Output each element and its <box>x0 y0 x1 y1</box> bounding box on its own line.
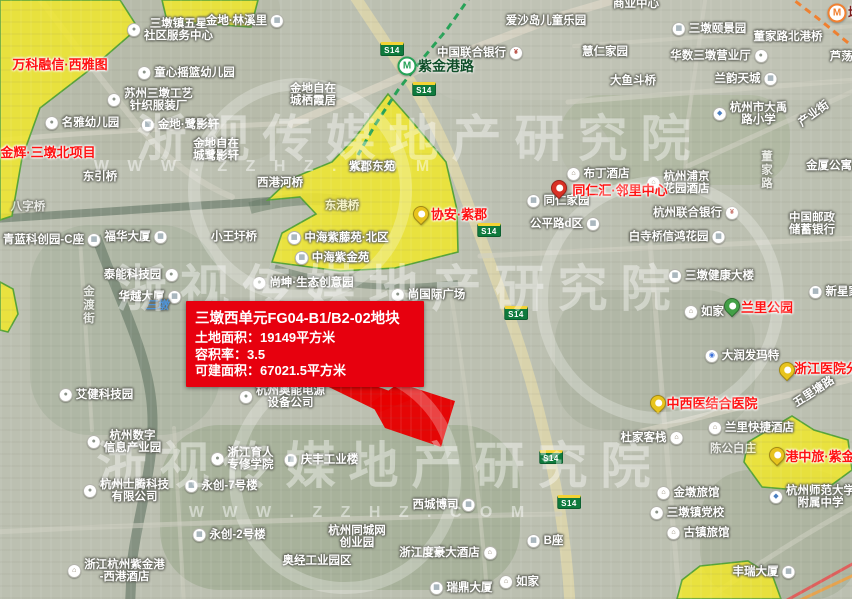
dot-icon: ● <box>45 116 59 130</box>
map-label-text: 中国邮政储蓄银行 <box>789 212 835 236</box>
map-label-text: 小王圩桥 <box>211 231 257 243</box>
map-label: 白寺桥 <box>629 231 664 243</box>
map-label-text: 青蓝科创园-C座 <box>3 234 84 246</box>
map-label-text: 东引桥 <box>83 171 118 183</box>
map-label: 金地·林溪里▦ <box>206 14 284 28</box>
map-label: ●杭州士腾科技有限公司 <box>83 479 169 503</box>
map-label: ▦三墩颐景园 <box>672 22 747 36</box>
map-label: 三墩 <box>146 300 169 312</box>
map-label: 杭州联合银行¥ <box>653 206 739 220</box>
map-label: ⌂兰里快捷酒店 <box>708 421 794 435</box>
poi-pin[interactable] <box>410 203 433 226</box>
map-label: 紫郡东苑 <box>349 161 395 173</box>
map-label: 福华大厦▦ <box>105 230 168 244</box>
map-label: 万科融信·西雅图 <box>12 59 107 71</box>
map-label: ●三墩镇党校 <box>650 506 725 520</box>
bld-icon: ▦ <box>672 22 686 36</box>
hotel-icon: ⌂ <box>667 526 681 540</box>
map-label: 中西医结合医院 <box>666 398 757 410</box>
bld-icon: ▦ <box>270 14 284 28</box>
map-label-text: 金厦公寓 <box>806 160 852 172</box>
map-label-text: 杭州联合银行 <box>653 207 722 219</box>
map-label: ●苏州三墩工艺针织服装厂 <box>107 88 193 112</box>
map-label: 陈公白庄 <box>710 443 756 455</box>
hotel-icon: ⌂ <box>67 564 81 578</box>
map-label: ▦永创-2号楼 <box>192 528 265 542</box>
map-label: 董家路北港桥 <box>754 31 823 43</box>
bld-icon: ▦ <box>782 565 796 579</box>
map-label-text: 杭州奥能电源设备公司 <box>256 385 325 409</box>
map-label-text: 尚国际广场 <box>408 289 466 301</box>
map-label-text: 三墩颐景园 <box>689 23 747 35</box>
map-label: 泰能科技园● <box>104 268 179 282</box>
bld-icon: ▦ <box>295 251 309 265</box>
parcel-land-area: 土地面积：19149平方米 <box>195 330 415 347</box>
poi-pin[interactable] <box>721 295 744 318</box>
map-label-text: B座 <box>544 535 564 547</box>
map-label: 兰韵天城▦ <box>715 72 778 86</box>
map-label: 青蓝科创园-C座▦ <box>3 233 101 247</box>
road-shield-s14: S14 <box>504 306 528 320</box>
hotel-icon: ⌂ <box>499 575 513 589</box>
map-label-text: 港中旅·紫金 <box>785 451 852 463</box>
map-label: 金地自在城栖霞居 <box>290 83 336 107</box>
bld-icon: ▦ <box>184 479 198 493</box>
bld-icon: ▦ <box>430 581 444 595</box>
map-label: ●三墩镇五星社区服务中心 <box>127 18 213 42</box>
map-label-text: 如家 <box>516 576 539 588</box>
map-label: 公平路d区▦ <box>530 217 600 231</box>
map-label-text: 金地·鹭影轩 <box>158 119 219 131</box>
map-label: 芦荡湾 <box>830 51 852 63</box>
map-label-text: 三墩健康大楼 <box>685 270 754 282</box>
map-label: ●杭州数字信息产业园 <box>87 430 162 454</box>
map-label: ●尚国际广场 <box>391 288 466 302</box>
map-label: 金地自在城鹭影轩 <box>193 138 239 162</box>
bank-icon: ¥ <box>725 206 739 220</box>
map-label: 金渡街 <box>82 285 94 326</box>
map-label-text: 庆丰工业楼 <box>301 454 359 466</box>
map-label-text: 苏州三墩工艺针织服装厂 <box>124 88 193 112</box>
map-label-text: 金地·林溪里 <box>206 15 267 27</box>
label-layer: ●三墩镇五星社区服务中心金地·林溪里▦●童心摇篮幼儿园●苏州三墩工艺针织服装厂金… <box>0 0 852 599</box>
school-icon: ◆ <box>713 107 727 121</box>
hotel-icon: ⌂ <box>670 431 684 445</box>
map-label-text: 董家路 <box>760 150 772 191</box>
map-label: ◆杭州师范大学附属中学 <box>769 485 852 509</box>
map-label: ▦中海紫藤苑·北区 <box>287 231 388 245</box>
map-label: ◆杭州市大禹路小学 <box>713 102 788 126</box>
school-icon: ◆ <box>769 490 783 504</box>
map-label-text: 产业街 <box>797 99 832 129</box>
map-label: 产业街 <box>797 99 832 129</box>
map-label-text: 董家路北港桥 <box>754 31 823 43</box>
map-label: 浙江医院分院 <box>794 363 852 375</box>
map-label-text: 商业中心 <box>613 0 659 10</box>
hotel-icon: ⌂ <box>657 486 671 500</box>
map-label: ●浙江育人专修学院 <box>211 447 274 471</box>
metro-station-label: 墩祥街 <box>848 3 852 23</box>
dot-icon: ● <box>239 390 253 404</box>
map-label-text: 芦荡湾 <box>830 51 852 63</box>
map-label: 金厦公寓 <box>806 160 852 172</box>
dot-icon: ● <box>754 49 768 63</box>
map-label-text: 古镇旅馆 <box>684 527 730 539</box>
map-label: ▦永创-7号楼 <box>184 479 257 493</box>
road-shield-s14: S14 <box>380 42 404 56</box>
map-label: ▦新星家园 <box>809 285 852 299</box>
hotel-icon: ⌂ <box>708 421 722 435</box>
map-label: 慧仁家园 <box>582 46 628 58</box>
map-label-text: 三墩 <box>146 300 169 312</box>
map-label: ▦B座 <box>527 534 564 548</box>
map-label-text: 杭州同城网创业园 <box>328 525 386 549</box>
bank-icon: ¥ <box>509 46 523 60</box>
bld-icon: ▦ <box>284 453 298 467</box>
bld-icon: ▦ <box>527 534 541 548</box>
bld-icon: ▦ <box>168 290 182 304</box>
map-label-text: 浙江育人专修学院 <box>228 447 274 471</box>
map-label-text: 童心摇篮幼儿园 <box>154 67 235 79</box>
map-label: 西港河桥 <box>257 177 303 189</box>
bld-icon: ▦ <box>287 231 301 245</box>
dot-icon: ● <box>83 484 97 498</box>
map-label-text: 三墩镇五星社区服务中心 <box>144 18 213 42</box>
map-label-text: 奥经工业园区 <box>283 555 352 567</box>
map-label-text: 金辉·三墩北项目 <box>0 147 95 159</box>
map-label: ▦三墩健康大楼 <box>668 269 754 283</box>
dot-icon: ● <box>211 452 225 466</box>
map-label-text: 杜家客栈 <box>621 432 667 444</box>
dot-icon: ● <box>127 23 141 37</box>
map-label: ▦金地·鹭影轩 <box>141 118 219 132</box>
map-label: ⌂浙江杭州紫金港-西港酒店 <box>67 559 165 583</box>
map-label: 港中旅·紫金 <box>785 451 852 463</box>
map-label: ▦瑞鼎大厦 <box>430 581 493 595</box>
map-label: 爱沙岛儿童乐园 <box>506 15 587 27</box>
dot-icon: ● <box>650 506 664 520</box>
hotel-icon: ⌂ <box>567 167 581 181</box>
map-label-text: 永创-7号楼 <box>201 480 257 492</box>
dot-icon: ● <box>107 93 121 107</box>
map-label: ⌂布丁酒店 <box>567 167 630 181</box>
map-label-text: 布丁酒店 <box>584 168 630 180</box>
bld-icon: ▦ <box>586 217 600 231</box>
map-label-text: 中西医结合医院 <box>666 398 757 410</box>
map-label: 五里塘路 <box>791 374 836 409</box>
map-label: ●艾健科技园 <box>59 388 134 402</box>
map-label-text: 西城博司 <box>413 499 459 511</box>
map-label: 同仁汇·邻里中心 <box>572 185 667 197</box>
bld-icon: ▦ <box>87 233 101 247</box>
metro-station-label: 紫金港路 <box>418 56 474 76</box>
map-label-text: 浙江杭州紫金港-西港酒店 <box>84 559 165 583</box>
map-label-text: 中海紫金苑 <box>312 252 370 264</box>
metro-station-icon[interactable]: M <box>828 4 847 23</box>
map-label: 兰里公园 <box>741 302 793 314</box>
map-label-text: 慧仁家园 <box>582 46 628 58</box>
map-label-text: 同仁汇·邻里中心 <box>572 185 667 197</box>
map-label-text: 兰韵天城 <box>715 73 761 85</box>
map-label-text: 陈公白庄 <box>710 443 756 455</box>
map-label-text: 兰里公园 <box>741 302 793 314</box>
map-label: 商业中心 <box>613 0 659 10</box>
map-label: ●尚坤·生态创意园 <box>252 276 353 290</box>
map-label: 协安·紫郡 <box>431 209 487 221</box>
map-label-text: 东港桥 <box>325 200 360 212</box>
bld-icon: ▦ <box>809 285 823 299</box>
bld-icon: ▦ <box>154 230 168 244</box>
map-label-text: 兰里快捷酒店 <box>725 422 794 434</box>
map-label: 小王圩桥 <box>211 231 257 243</box>
map-label-text: 金地自在城栖霞居 <box>290 83 336 107</box>
map-label-text: 丰瑞大厦 <box>733 566 779 578</box>
map-label-text: 杭州士腾科技有限公司 <box>100 479 169 503</box>
map-label-text: 紫郡东苑 <box>349 161 395 173</box>
map-label: 浙江度豪大酒店⌂ <box>399 546 497 560</box>
map-label: ⌂如家 <box>499 575 539 589</box>
parcel-title: 三墩西单元FG04-B1/B2-02地块 <box>195 307 415 328</box>
map-label-text: 万科融信·西雅图 <box>12 59 107 71</box>
road-shield-s14: S14 <box>539 450 563 464</box>
map-label: 信鸿花园▦ <box>663 230 726 244</box>
map-label-text: 金渡街 <box>82 285 94 326</box>
map-label: 奥经工业园区 <box>283 555 352 567</box>
map-label: 东港桥 <box>325 200 360 212</box>
map-label: ●名雅幼儿园 <box>45 116 120 130</box>
map-label-text: 名雅幼儿园 <box>62 117 120 129</box>
road-shield-s14: S14 <box>477 223 501 237</box>
map-label: ●童心摇篮幼儿园 <box>137 66 235 80</box>
map-label: 杭州同城网创业园 <box>328 525 386 549</box>
map-label-text: 大润发玛特 <box>722 350 780 362</box>
map-label: 东引桥 <box>83 171 118 183</box>
map-label-text: 五里塘路 <box>791 374 836 409</box>
map-label: 大鱼斗桥 <box>610 75 656 87</box>
map-label: 董家路 <box>760 150 772 191</box>
map-label-text: 大鱼斗桥 <box>610 75 656 87</box>
map-label-text: 爱沙岛儿童乐园 <box>506 15 587 27</box>
bld-icon: ▦ <box>527 194 541 208</box>
dot-icon: ● <box>391 288 405 302</box>
shop-icon: ◉ <box>705 349 719 363</box>
map-label-text: 永创-2号楼 <box>209 529 265 541</box>
parcel-info-box: 三墩西单元FG04-B1/B2-02地块 土地面积：19149平方米 容积率：3… <box>186 301 424 387</box>
bld-icon: ▦ <box>192 528 206 542</box>
map-label-text: 瑞鼎大厦 <box>447 582 493 594</box>
map-label-text: 福华大厦 <box>105 231 151 243</box>
bld-icon: ▦ <box>712 230 726 244</box>
map-label-text: 浙江医院分院 <box>794 363 852 375</box>
map-label-text: 新星家园 <box>826 286 852 298</box>
metro-station-icon[interactable]: M <box>398 57 417 76</box>
map-label-text: 中海紫藤苑·北区 <box>304 232 388 244</box>
dot-icon: ● <box>59 388 73 402</box>
map-label: ●杭州奥能电源设备公司 <box>239 385 325 409</box>
map-label: ⌂古镇旅馆 <box>667 526 730 540</box>
map-label: 金辉·三墩北项目 <box>0 147 95 159</box>
map-label: ▦中海紫金苑 <box>295 251 370 265</box>
dot-icon: ● <box>137 66 151 80</box>
parcel-far: 容积率：3.5 <box>195 347 415 364</box>
hotel-icon: ⌂ <box>684 305 698 319</box>
dot-icon: ● <box>252 276 266 290</box>
map-label-text: 金墩旅馆 <box>674 487 720 499</box>
map-label: 丰瑞大厦▦ <box>733 565 796 579</box>
bld-icon: ▦ <box>462 498 476 512</box>
map-label-text: 金地自在城鹭影轩 <box>193 138 239 162</box>
map-label-text: 三墩镇党校 <box>667 507 725 519</box>
map-label: ⌂如家 <box>684 305 724 319</box>
map-label-text: 浙江度豪大酒店 <box>399 547 480 559</box>
map-label-text: 公平路d区 <box>530 218 583 230</box>
map-label: ⌂金墩旅馆 <box>657 486 720 500</box>
map-label-text: 如家 <box>701 306 724 318</box>
map-label: 华数三墩营业厅● <box>670 49 768 63</box>
bld-icon: ▦ <box>764 72 778 86</box>
map-label: 杜家客栈⌂ <box>621 431 684 445</box>
map-label-text: 华数三墩营业厅 <box>670 50 751 62</box>
map-label: 八字桥 <box>11 201 46 213</box>
parcel-buildable-area: 可建面积：67021.5平方米 <box>195 363 415 380</box>
map-label-text: 艾健科技园 <box>76 389 134 401</box>
map-label-text: 尚坤·生态创意园 <box>269 277 353 289</box>
map-label-text: 杭州浦京花园酒店 <box>664 171 710 195</box>
map-label-text: 白寺桥 <box>629 231 664 243</box>
dot-icon: ● <box>164 268 178 282</box>
road-shield-s14: S14 <box>412 82 436 96</box>
map-label-text: 泰能科技园 <box>104 269 162 281</box>
bld-icon: ▦ <box>668 269 682 283</box>
map-label-text: 西港河桥 <box>257 177 303 189</box>
map-label-text: 杭州市大禹路小学 <box>730 102 788 126</box>
hotel-icon: ⌂ <box>483 546 497 560</box>
map-label: ◉大润发玛特 <box>705 349 780 363</box>
map-label-text: 信鸿花园 <box>663 231 709 243</box>
map-label-text: 杭州数字信息产业园 <box>104 430 162 454</box>
map-canvas[interactable]: ●三墩镇五星社区服务中心金地·林溪里▦●童心摇篮幼儿园●苏州三墩工艺针织服装厂金… <box>0 0 852 599</box>
road-shield-s14: S14 <box>557 495 581 509</box>
map-label: 中国邮政储蓄银行 <box>789 212 835 236</box>
map-label-text: 杭州师范大学附属中学 <box>786 485 852 509</box>
dot-icon: ● <box>87 435 101 449</box>
bld-icon: ▦ <box>141 118 155 132</box>
map-label-text: 八字桥 <box>11 201 46 213</box>
map-label: ▦庆丰工业楼 <box>284 453 359 467</box>
map-label: 西城博司▦ <box>413 498 476 512</box>
map-label-text: 协安·紫郡 <box>431 209 487 221</box>
